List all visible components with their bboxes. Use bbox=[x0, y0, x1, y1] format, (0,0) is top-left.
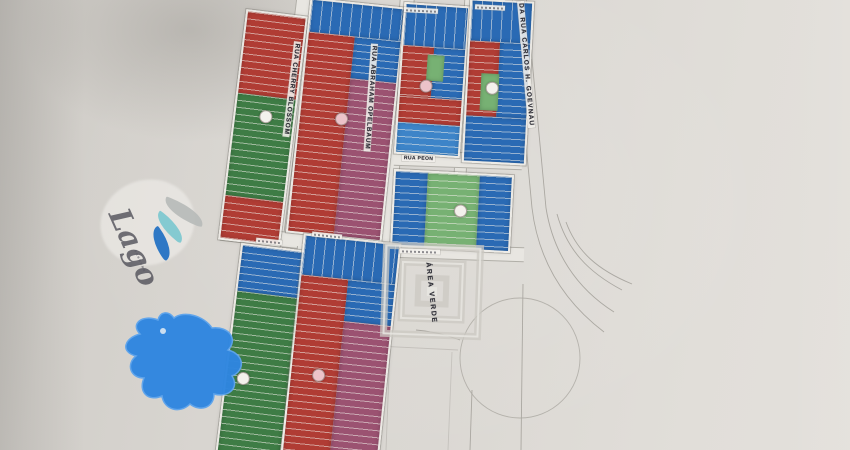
lago-watermark: Lago bbox=[92, 168, 222, 323]
street-label-peon: RUA PEON bbox=[402, 155, 436, 162]
subdivision-map-photo: RUA CHERRY BLOSSOM RUA ABRAHAM OPELBAUM … bbox=[0, 0, 850, 450]
lake-highlight bbox=[160, 328, 166, 334]
lake-icon bbox=[126, 313, 242, 410]
